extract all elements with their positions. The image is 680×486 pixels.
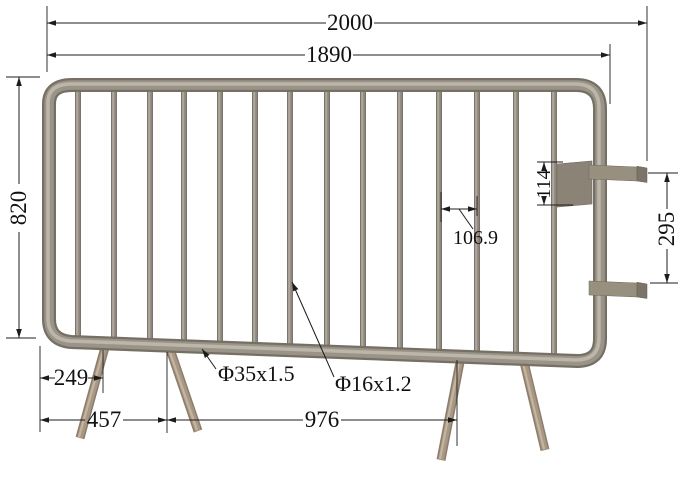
leg-back-left xyxy=(168,346,198,431)
dim-leg-span-label: 976 xyxy=(305,407,340,432)
label-infill-tube-spec: Φ16x1.2 xyxy=(292,282,412,396)
dim-panel-width: 1890 xyxy=(47,42,610,67)
dim-bar-spacing: 106.9 xyxy=(441,206,498,249)
dim-height-label: 820 xyxy=(6,191,31,226)
drawing-canvas: 2000 1890 820 114 295 106.9 xyxy=(0,0,680,486)
dim-hook-spacing-label: 295 xyxy=(654,212,679,247)
dim-overall-width: 2000 xyxy=(47,10,647,35)
infill-tube-spec-label: Φ16x1.2 xyxy=(335,371,412,396)
dim-hook-plate-height-label: 114 xyxy=(533,169,555,198)
dim-leg-offset-label: 249 xyxy=(54,365,89,390)
infill-bars xyxy=(77,90,554,356)
hook-plate xyxy=(557,161,592,207)
dim-bar-spacing-label: 106.9 xyxy=(453,227,498,249)
leg-back-right xyxy=(523,362,545,450)
dim-leg-span: 976 xyxy=(167,407,457,432)
frame-tube-spec-label: Φ35x1.5 xyxy=(218,361,295,386)
barrier-technical-drawing: 2000 1890 820 114 295 106.9 xyxy=(0,0,680,486)
dim-leg-inner-span-label: 457 xyxy=(87,407,122,432)
dim-hook-spacing: 295 xyxy=(654,173,679,283)
leg-front-right xyxy=(440,357,461,460)
dim-leg-inner-span: 457 xyxy=(40,407,167,432)
dim-overall-width-label: 2000 xyxy=(327,10,373,35)
dim-panel-width-label: 1890 xyxy=(306,42,352,67)
dim-height: 820 xyxy=(6,77,31,338)
